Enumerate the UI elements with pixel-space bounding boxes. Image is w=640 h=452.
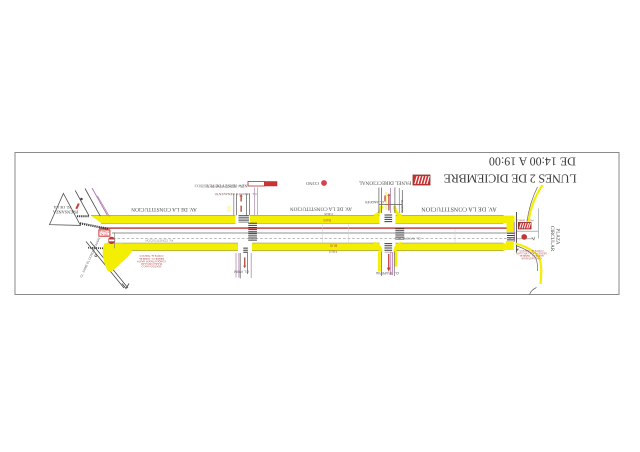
svg-text:PANEL DIRECC.: PANEL DIRECC.	[515, 218, 533, 221]
svg-text:PLAZA: PLAZA	[555, 228, 561, 245]
svg-text:CONO: CONO	[305, 181, 319, 186]
svg-text:PZ. DE LA: PZ. DE LA	[53, 205, 71, 209]
svg-text:DE 14:00 A 19:00: DE 14:00 A 19:00	[489, 155, 576, 169]
svg-text:SENTIDO UNICO: SENTIDO UNICO	[142, 264, 162, 267]
svg-text:LUNES 2 DE DICIEMBRE: LUNES 2 DE DICIEMBRE	[444, 172, 577, 186]
svg-text:BUS: BUS	[329, 244, 337, 248]
svg-text:CL. JACINTO BENAVENTE: CL. JACINTO BENAVENTE	[206, 184, 243, 188]
svg-text:F.BUS: F.BUS	[329, 249, 338, 253]
svg-text:AV. DE LA CONSTITUCION: AV. DE LA CONSTITUCION	[421, 206, 497, 213]
svg-text:AV. CONSTITUCION: AV. CONSTITUCION	[145, 239, 173, 243]
svg-text:CL. PRIM: CL. PRIM	[234, 270, 249, 274]
svg-text:CL. JACINTO BENAVENTE: CL. JACINTO BENAVENTE	[214, 192, 256, 196]
svg-text:CIRCULAR: CIRCULAR	[549, 226, 555, 252]
svg-text:PRENSANZA: PRENSANZA	[52, 209, 78, 214]
svg-text:AV. DE LA CONSTITUCION: AV. DE LA CONSTITUCION	[131, 206, 197, 212]
svg-text:CL. ANDRES: CL. ANDRES	[365, 200, 384, 204]
svg-text:CL. MAYOR: CL. MAYOR	[404, 237, 421, 241]
svg-text:CL. REAL: CL. REAL	[400, 200, 404, 214]
svg-text:CONQUISTADOR: CONQUISTADOR	[521, 257, 541, 260]
svg-text:PANEL DIRECCIONAL: PANEL DIRECCIONAL	[359, 180, 412, 186]
svg-text:CONQUISTADOR HASTA: CONQUISTADOR HASTA	[137, 259, 166, 262]
svg-text:BUS: BUS	[323, 218, 331, 222]
svg-text:TOTAL: TOTAL	[100, 232, 109, 236]
svg-text:CORTE AL TRAFICO: CORTE AL TRAFICO	[140, 254, 164, 257]
svg-text:DESDE CL. JAIME EL: DESDE CL. JAIME EL	[138, 257, 164, 260]
svg-text:AV. DE LA CONSTITUCION: AV. DE LA CONSTITUCION	[290, 206, 352, 212]
svg-text:CL. TRAPERIA: CL. TRAPERIA	[375, 271, 399, 275]
